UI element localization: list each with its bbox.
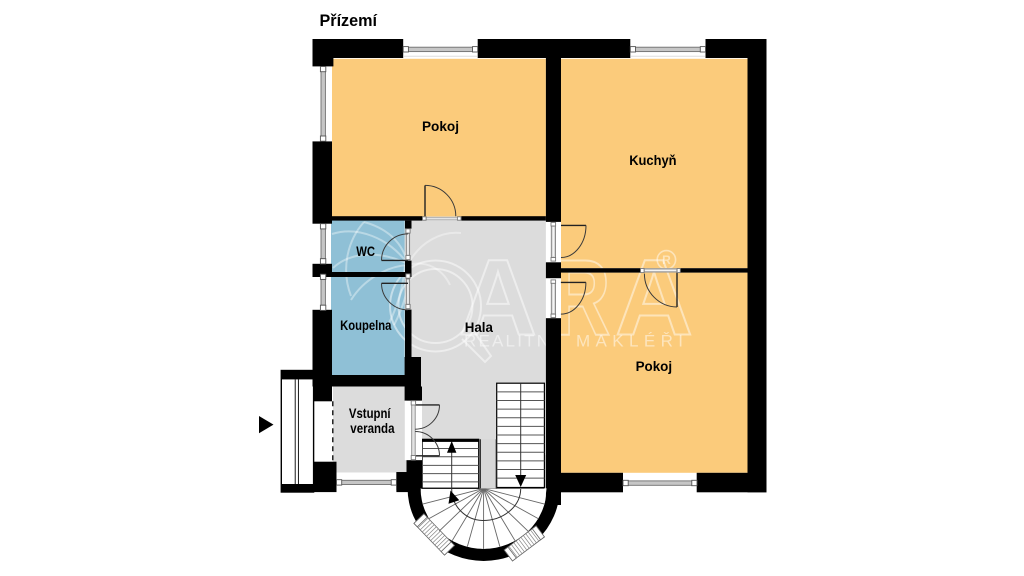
svg-text:Pokoj: Pokoj bbox=[636, 359, 673, 374]
svg-text:Přízemí: Přízemí bbox=[320, 11, 379, 30]
svg-text:WC: WC bbox=[356, 244, 375, 259]
svg-text:R: R bbox=[662, 253, 671, 267]
svg-text:Hala: Hala bbox=[465, 320, 494, 335]
svg-text:Koupelna: Koupelna bbox=[340, 318, 392, 333]
svg-text:Vstupní: Vstupní bbox=[349, 406, 392, 421]
svg-text:Pokoj: Pokoj bbox=[422, 119, 459, 134]
svg-text:MAKLÉŘI: MAKLÉŘI bbox=[576, 332, 688, 351]
svg-text:Kuchyň: Kuchyň bbox=[629, 153, 676, 168]
svg-text:veranda: veranda bbox=[350, 421, 395, 436]
